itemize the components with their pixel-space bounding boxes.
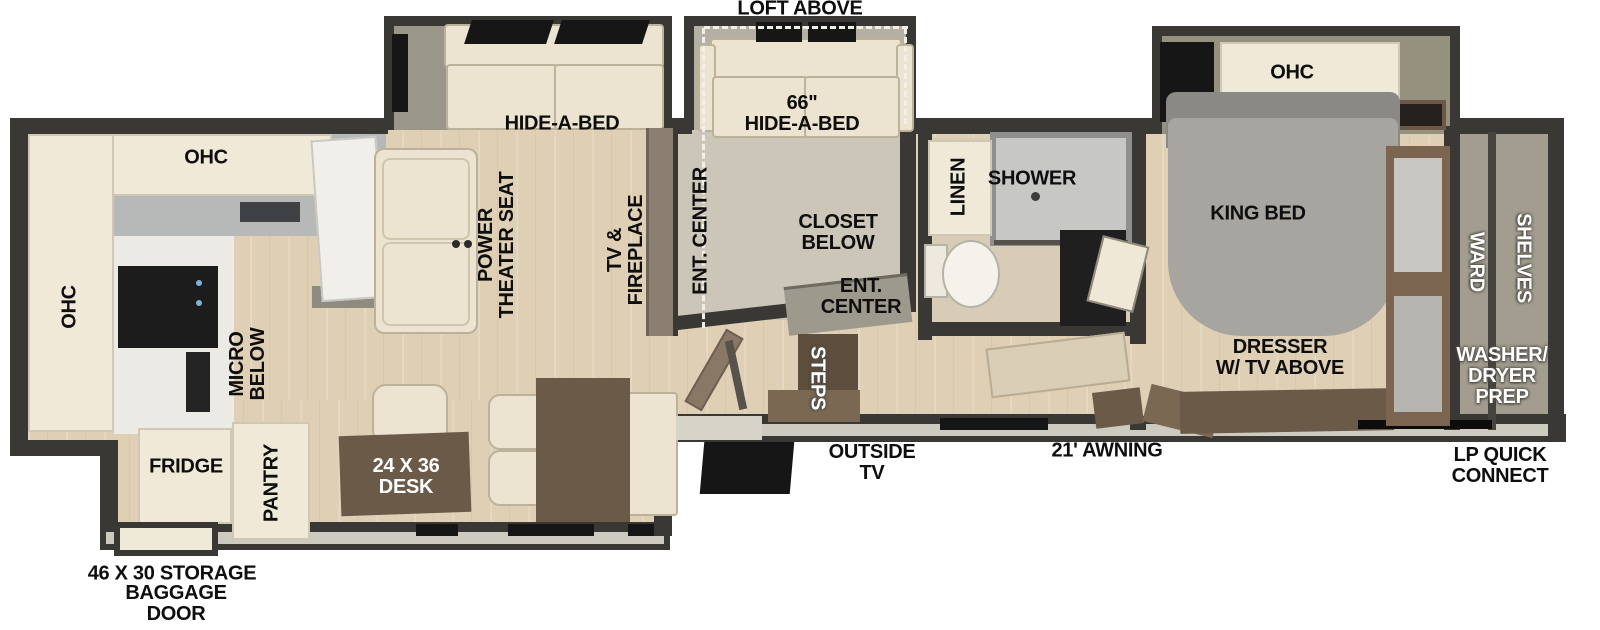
label-ward: WARD — [1466, 232, 1487, 292]
storage-compartment — [114, 522, 218, 556]
stove-cooktop — [118, 266, 218, 348]
label-ent-center-front: ENT. CENTER — [821, 276, 901, 318]
label-shower: SHOWER — [988, 169, 1076, 190]
loft-skylight — [756, 22, 802, 42]
slideout-window — [392, 34, 408, 112]
cupholder-icon — [464, 240, 472, 248]
label-king-bed: KING BED — [1210, 204, 1305, 225]
window-bottom-left — [508, 524, 594, 536]
oven-below — [186, 352, 210, 412]
label-steps: STEPS — [807, 346, 828, 410]
dinette-bench — [626, 392, 678, 516]
label-desk: 24 X 36 DESK — [373, 456, 440, 498]
label-dresser: DRESSER W/ TV ABOVE — [1216, 337, 1344, 379]
label-washer-dryer-prep: WASHER/ DRYER PREP — [1456, 345, 1547, 407]
wall-left — [10, 118, 28, 456]
label-power-theater-seat: POWER THEATER SEAT — [476, 172, 518, 319]
label-fridge: FRIDGE — [149, 457, 223, 478]
wardrobe-pane — [1394, 296, 1442, 412]
cupholder-icon — [452, 240, 460, 248]
king-bed — [1168, 118, 1398, 336]
label-outside-tv: OUTSIDE TV — [829, 442, 916, 484]
label-awning: 21' AWNING — [1051, 441, 1162, 462]
label-shelves: SHELVES — [1513, 213, 1534, 303]
window-bottom-right — [940, 418, 1048, 430]
window-bottom-left — [416, 524, 458, 536]
dinette-table — [536, 378, 630, 522]
wall-right — [1548, 118, 1564, 442]
wall-notch-horizontal — [10, 440, 114, 456]
loft-dashed-outline-top — [704, 26, 908, 29]
hide-a-bed-66-back — [710, 38, 902, 80]
label-tv-fireplace: TV & FIREPLACE — [605, 195, 647, 306]
window-bottom-left — [628, 524, 654, 536]
loft-skylight — [808, 22, 856, 42]
shower-drain-icon — [1031, 192, 1040, 201]
toilet-bowl — [942, 240, 1000, 308]
kitchen-ohc-side-cabinet — [28, 134, 114, 432]
label-pantry: PANTRY — [262, 444, 283, 522]
label-linen: LINEN — [949, 158, 970, 217]
label-baggage-door: BAGGAGE DOOR — [125, 583, 226, 625]
theater-seat-cushion — [382, 158, 470, 240]
outside-tv-box — [700, 442, 795, 494]
entry-door-opening — [676, 416, 762, 440]
label-ent-center-side: ENT. CENTER — [691, 167, 712, 295]
label-bedroom-ohc: OHC — [1270, 63, 1314, 84]
tv-fireplace-wall — [646, 128, 673, 336]
floorplan-canvas: LOFT ABOVE HIDE-A-BED 66" HIDE-A-BED OHC… — [0, 0, 1600, 630]
skylight-window — [464, 20, 554, 44]
label-micro-below: MICRO BELOW — [227, 328, 269, 401]
bedroom-window — [1394, 100, 1446, 130]
kitchen-sink — [240, 202, 300, 222]
stove-knob-icon — [196, 300, 202, 306]
theater-seat-cushion — [382, 242, 470, 326]
kitchen-counter-top — [114, 196, 336, 236]
label-loft-above: LOFT ABOVE — [737, 0, 862, 19]
bedroom-steps-lower — [1092, 387, 1144, 429]
label-closet-below: CLOSET BELOW — [798, 212, 877, 254]
label-lp-quick-connect: LP QUICK CONNECT — [1452, 445, 1549, 487]
loft-dashed-outline-right — [904, 28, 907, 124]
skylight-window — [554, 20, 650, 44]
label-66-hide-a-bed: 66" HIDE-A-BED — [745, 93, 860, 135]
label-kitchen-ohc-side: OHC — [60, 285, 81, 329]
label-hide-a-bed: HIDE-A-BED — [505, 114, 620, 135]
wall-top-right — [1450, 118, 1562, 134]
wall-top-left — [22, 118, 388, 134]
label-kitchen-ohc-top: OHC — [184, 148, 228, 169]
stove-knob-icon — [196, 280, 202, 286]
wardrobe-pane — [1394, 158, 1442, 272]
